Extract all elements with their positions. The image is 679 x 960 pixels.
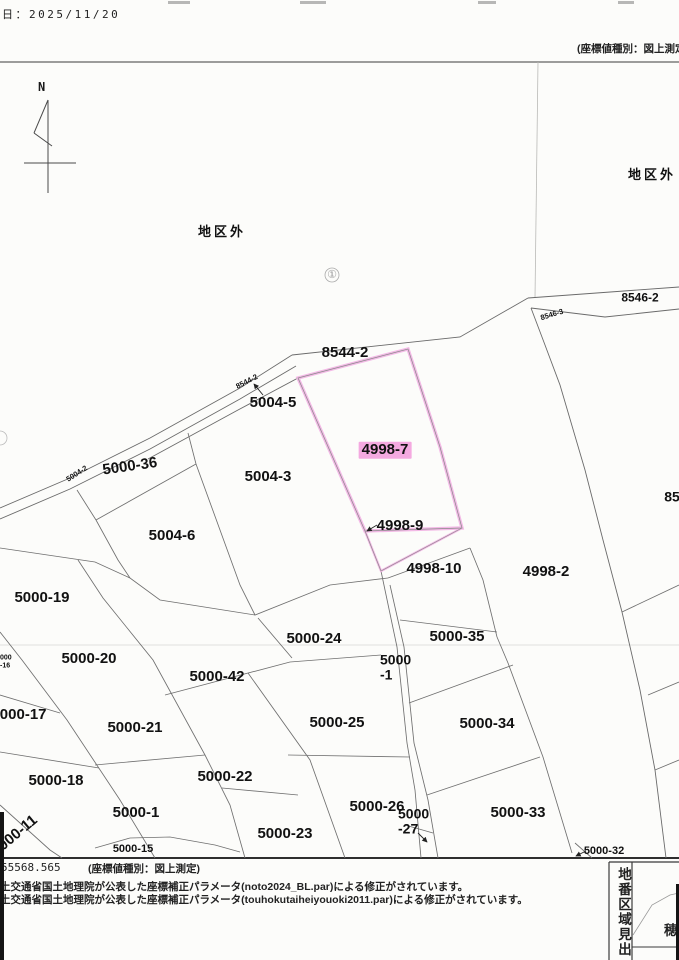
- map-label-5004-2: 5004-2: [65, 464, 89, 484]
- coordinate-value: 55568.565: [1, 861, 61, 874]
- scan-smudge: [168, 1, 190, 4]
- map-label-5000-24: 5000-24: [286, 631, 341, 648]
- map-label-5004-3: 5004-3: [245, 469, 292, 486]
- map-label-8546-2: 8546-2: [621, 291, 658, 304]
- map-label-5000-22: 5000-22: [197, 769, 252, 786]
- scan-smudge: [478, 1, 496, 4]
- map-label-: 地区外: [198, 225, 246, 239]
- map-label-4998-7[interactable]: 4998-7: [359, 442, 412, 459]
- map-label-5000-1: 5000-1: [113, 805, 160, 822]
- map-label-000-16: 000 -16: [0, 654, 12, 669]
- map-label-8546-3: 8546-3: [540, 308, 565, 323]
- map-label-5000-20: 5000-20: [61, 651, 116, 668]
- map-label-5000-35: 5000-35: [429, 629, 484, 646]
- map-label-85: 85: [664, 489, 679, 504]
- map-label-5000-21: 5000-21: [107, 720, 162, 737]
- cadastral-map-page: 日：2025/11/20 (座標値種別：図上測定: [0, 0, 679, 960]
- map-label-5000-25: 5000-25: [309, 715, 364, 732]
- map-label-5004-6: 5004-6: [149, 528, 196, 545]
- index-box-title: 地番区域見出: [608, 867, 633, 959]
- north-label: N: [38, 80, 45, 94]
- map-label-5000-27: 5000 -27: [398, 807, 429, 838]
- map-label-: 地区外: [628, 168, 676, 182]
- map-label-5000-15: 5000-15: [113, 843, 153, 855]
- coord-type-note-bottom: (座標値種別：図上測定): [88, 861, 200, 876]
- scan-smudge: [300, 1, 326, 4]
- map-label-5000-34: 5000-34: [459, 716, 514, 733]
- map-label-5000-36: 5000-36: [102, 455, 159, 479]
- map-label-5000-42: 5000-42: [189, 669, 244, 686]
- map-label-4998-2: 4998-2: [523, 564, 570, 581]
- map-label-5000-26: 5000-26: [349, 799, 404, 816]
- map-label-8544-2: 8544-2: [322, 345, 369, 362]
- map-label-4998-9: 4998-9: [377, 518, 424, 535]
- map-label-4998-10: 4998-10: [406, 561, 461, 578]
- map-label-8544-2: 8544-2: [235, 373, 260, 391]
- scan-smudge: [618, 1, 634, 4]
- map-label-5000-33: 5000-33: [490, 805, 545, 822]
- map-label-5000-32: 5000-32: [584, 845, 624, 857]
- map-label-5000-11: 5000-11: [0, 812, 41, 860]
- map-label-5000-19: 5000-19: [14, 590, 69, 607]
- correction-note-2: 土交通省国土地理院が公表した座標補正パラメータ(touhokutaiheiyou…: [0, 892, 528, 907]
- parcel-label-layer: 地区外地区外①8546-28546-38544-28544-25004-5500…: [0, 0, 679, 960]
- map-label-5000-1: 5000 -1: [380, 653, 411, 684]
- map-label-5000-17: 5000-17: [0, 707, 47, 724]
- map-label-5004-5: 5004-5: [250, 395, 297, 412]
- map-label-: ①: [327, 269, 337, 281]
- map-label-5000-18: 5000-18: [28, 773, 83, 790]
- map-label-5000-23: 5000-23: [257, 826, 312, 843]
- scan-artifact-left: [0, 812, 4, 960]
